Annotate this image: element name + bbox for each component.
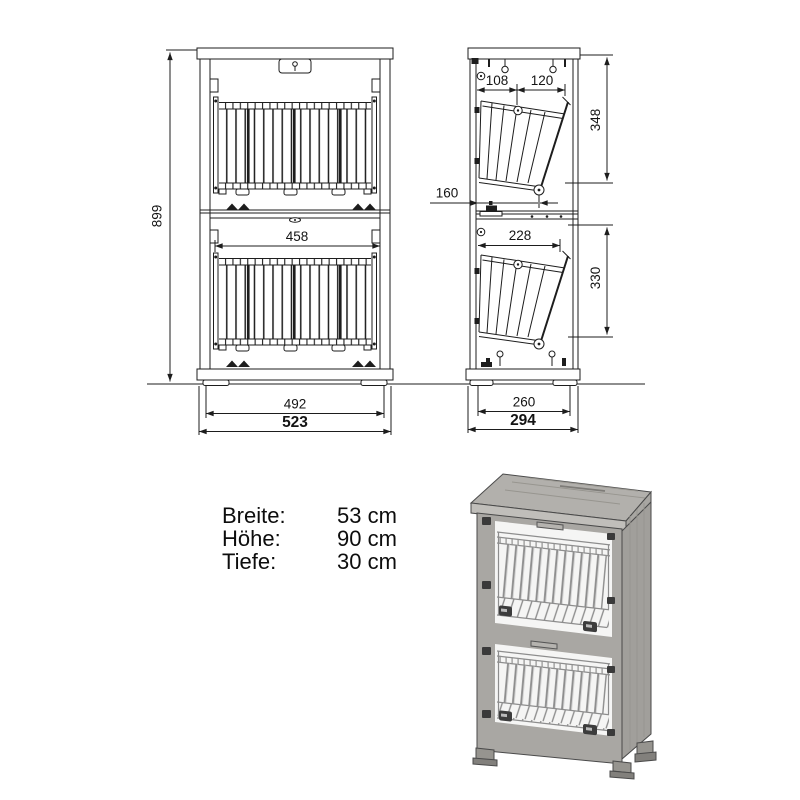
dim-total-height: 899 — [150, 50, 198, 382]
dim-label-260: 260 — [513, 395, 536, 410]
dim-label-228: 228 — [509, 228, 532, 243]
side-view: 108 120 348 — [430, 48, 613, 433]
dim-upper-section-height: 348 — [565, 55, 613, 183]
spec-value-tiefe: 30 cm — [337, 550, 397, 573]
spec-table: Breite: 53 cm Höhe: 90 cm Tiefe: 30 cm — [222, 504, 397, 573]
spec-row-tiefe: Tiefe: 30 cm — [222, 550, 397, 573]
front-foot-right — [361, 380, 387, 386]
dim-label-458: 458 — [286, 229, 309, 244]
dim-basket-offset: 108 120 — [477, 73, 565, 105]
technical-drawing: 458 — [0, 0, 800, 800]
dim-lower-section-height: 330 — [568, 225, 613, 337]
product-photo — [471, 474, 656, 779]
dim-label-348: 348 — [588, 109, 603, 132]
front-hook-right2 — [372, 230, 380, 243]
spec-label-breite: Breite: — [222, 504, 337, 527]
dim-label-330: 330 — [588, 267, 603, 290]
dim-label-899: 899 — [150, 205, 165, 228]
front-top-latch — [279, 59, 311, 73]
side-plinth — [466, 369, 580, 380]
photo-side-panel — [622, 502, 651, 759]
side-lower-basket — [479, 251, 571, 349]
side-foot-back — [553, 380, 577, 386]
spec-label-tiefe: Tiefe: — [222, 550, 337, 573]
spec-label-hoehe: Höhe: — [222, 527, 337, 550]
spec-row-breite: Breite: 53 cm — [222, 504, 397, 527]
dim-total-depth: 294 — [468, 386, 578, 433]
dim-label-108: 108 — [486, 73, 509, 88]
front-foot-left — [203, 380, 229, 386]
dim-label-523: 523 — [282, 414, 308, 431]
front-plinth — [197, 369, 393, 380]
dim-label-120: 120 — [531, 73, 554, 88]
spec-row-hoehe: Höhe: 90 cm — [222, 527, 397, 550]
dim-label-160: 160 — [436, 186, 459, 201]
front-view: 458 — [150, 48, 394, 435]
product-dimension-sheet: 458 — [0, 0, 800, 800]
side-foot-front — [470, 380, 493, 386]
dim-label-294: 294 — [510, 412, 536, 429]
front-hook-right — [372, 79, 380, 92]
front-hook-left2 — [210, 230, 218, 243]
front-hook-left — [210, 79, 218, 92]
side-upper-basket — [479, 97, 571, 195]
dim-label-492: 492 — [284, 397, 307, 412]
front-lower-basket — [214, 253, 377, 351]
spec-value-hoehe: 90 cm — [337, 527, 397, 550]
side-separator — [476, 201, 578, 219]
dim-basket-depth: 228 — [478, 228, 560, 252]
spec-value-breite: 53 cm — [337, 504, 397, 527]
front-upper-basket — [214, 97, 377, 195]
